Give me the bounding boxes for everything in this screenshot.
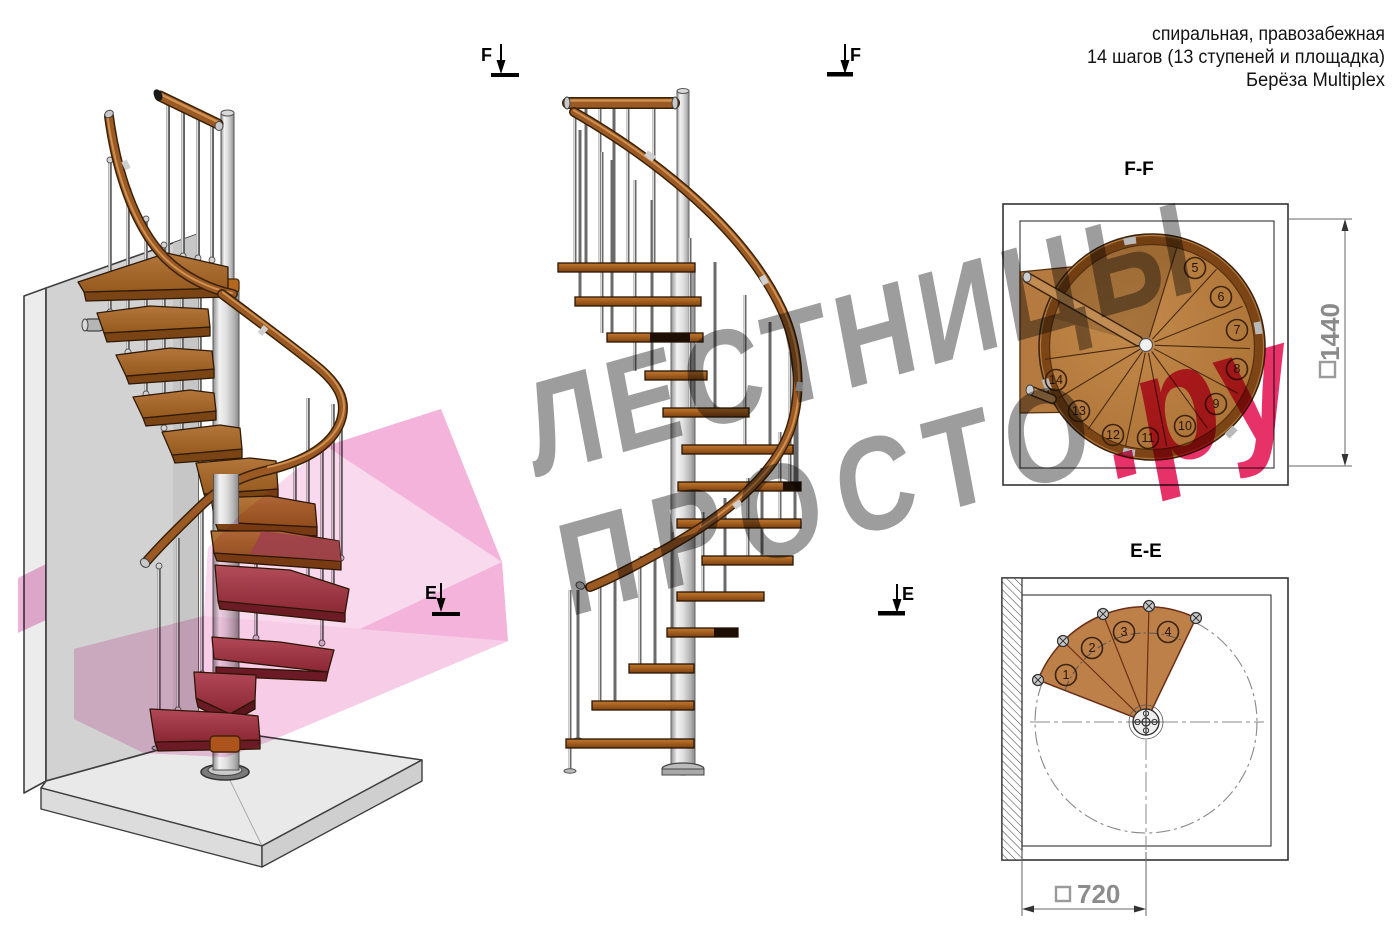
svg-text:F-F: F-F (1124, 159, 1154, 180)
svg-text:F: F (481, 45, 492, 65)
svg-text:E: E (425, 583, 437, 603)
svg-text:F: F (850, 45, 861, 65)
svg-text:4: 4 (1165, 625, 1172, 639)
svg-text:спиральная, правозабежная: спиральная, правозабежная (1152, 24, 1385, 45)
svg-text:14 шагов (13 ступеней и площад: 14 шагов (13 ступеней и площадка) (1087, 47, 1385, 68)
svg-text:Берёза Multiplex: Берёза Multiplex (1246, 70, 1385, 91)
svg-text:E: E (902, 584, 914, 604)
svg-text:E-E: E-E (1130, 541, 1162, 562)
svg-text:1: 1 (1063, 668, 1070, 682)
svg-text:720: 720 (1077, 879, 1120, 909)
svg-text:3: 3 (1121, 625, 1128, 639)
svg-text:2: 2 (1089, 641, 1096, 655)
svg-text:1440: 1440 (1315, 303, 1345, 361)
